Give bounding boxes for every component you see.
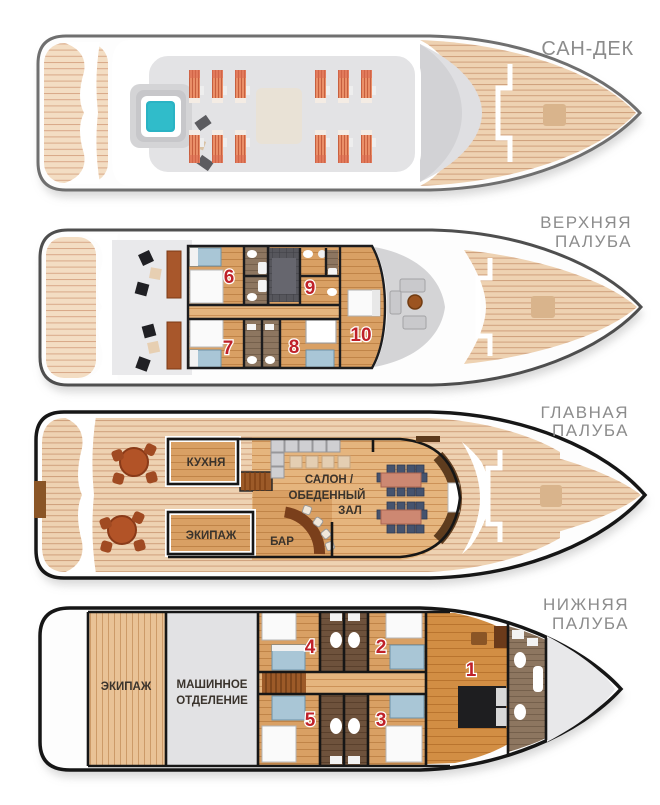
svg-text:ПАЛУБА: ПАЛУБА <box>552 614 629 633</box>
svg-text:ОТДЕЛЕНИЕ: ОТДЕЛЕНИЕ <box>176 695 248 707</box>
svg-text:ЗАЛ: ЗАЛ <box>338 505 362 517</box>
svg-text:ОБЕДЕННЫЙ: ОБЕДЕННЫЙ <box>289 489 366 502</box>
svg-text:5: 5 <box>305 710 316 731</box>
svg-text:КУХНЯ: КУХНЯ <box>187 457 226 469</box>
svg-text:БАР: БАР <box>270 536 294 548</box>
svg-text:ГЛАВНАЯ: ГЛАВНАЯ <box>541 403 629 422</box>
svg-text:8: 8 <box>289 337 300 358</box>
svg-text:2: 2 <box>376 637 387 658</box>
svg-text:10: 10 <box>350 325 371 346</box>
svg-text:САЛОН /: САЛОН / <box>305 474 354 486</box>
svg-text:ПАЛУБА: ПАЛУБА <box>555 232 632 251</box>
svg-text:ЭКИПАЖ: ЭКИПАЖ <box>186 530 237 542</box>
svg-text:ЭКИПАЖ: ЭКИПАЖ <box>101 681 152 693</box>
svg-text:САН-ДЕК: САН-ДЕК <box>541 38 634 60</box>
svg-text:7: 7 <box>223 338 234 359</box>
svg-text:ПАЛУБА: ПАЛУБА <box>552 421 629 440</box>
svg-text:1: 1 <box>466 660 477 681</box>
svg-text:ВЕРХНЯЯ: ВЕРХНЯЯ <box>540 213 632 232</box>
svg-text:6: 6 <box>224 267 235 288</box>
svg-text:МАШИННОЕ: МАШИННОЕ <box>177 679 248 691</box>
svg-text:9: 9 <box>305 278 316 299</box>
svg-text:НИЖНЯЯ: НИЖНЯЯ <box>543 595 629 614</box>
svg-text:4: 4 <box>305 637 316 658</box>
svg-text:3: 3 <box>376 710 387 731</box>
